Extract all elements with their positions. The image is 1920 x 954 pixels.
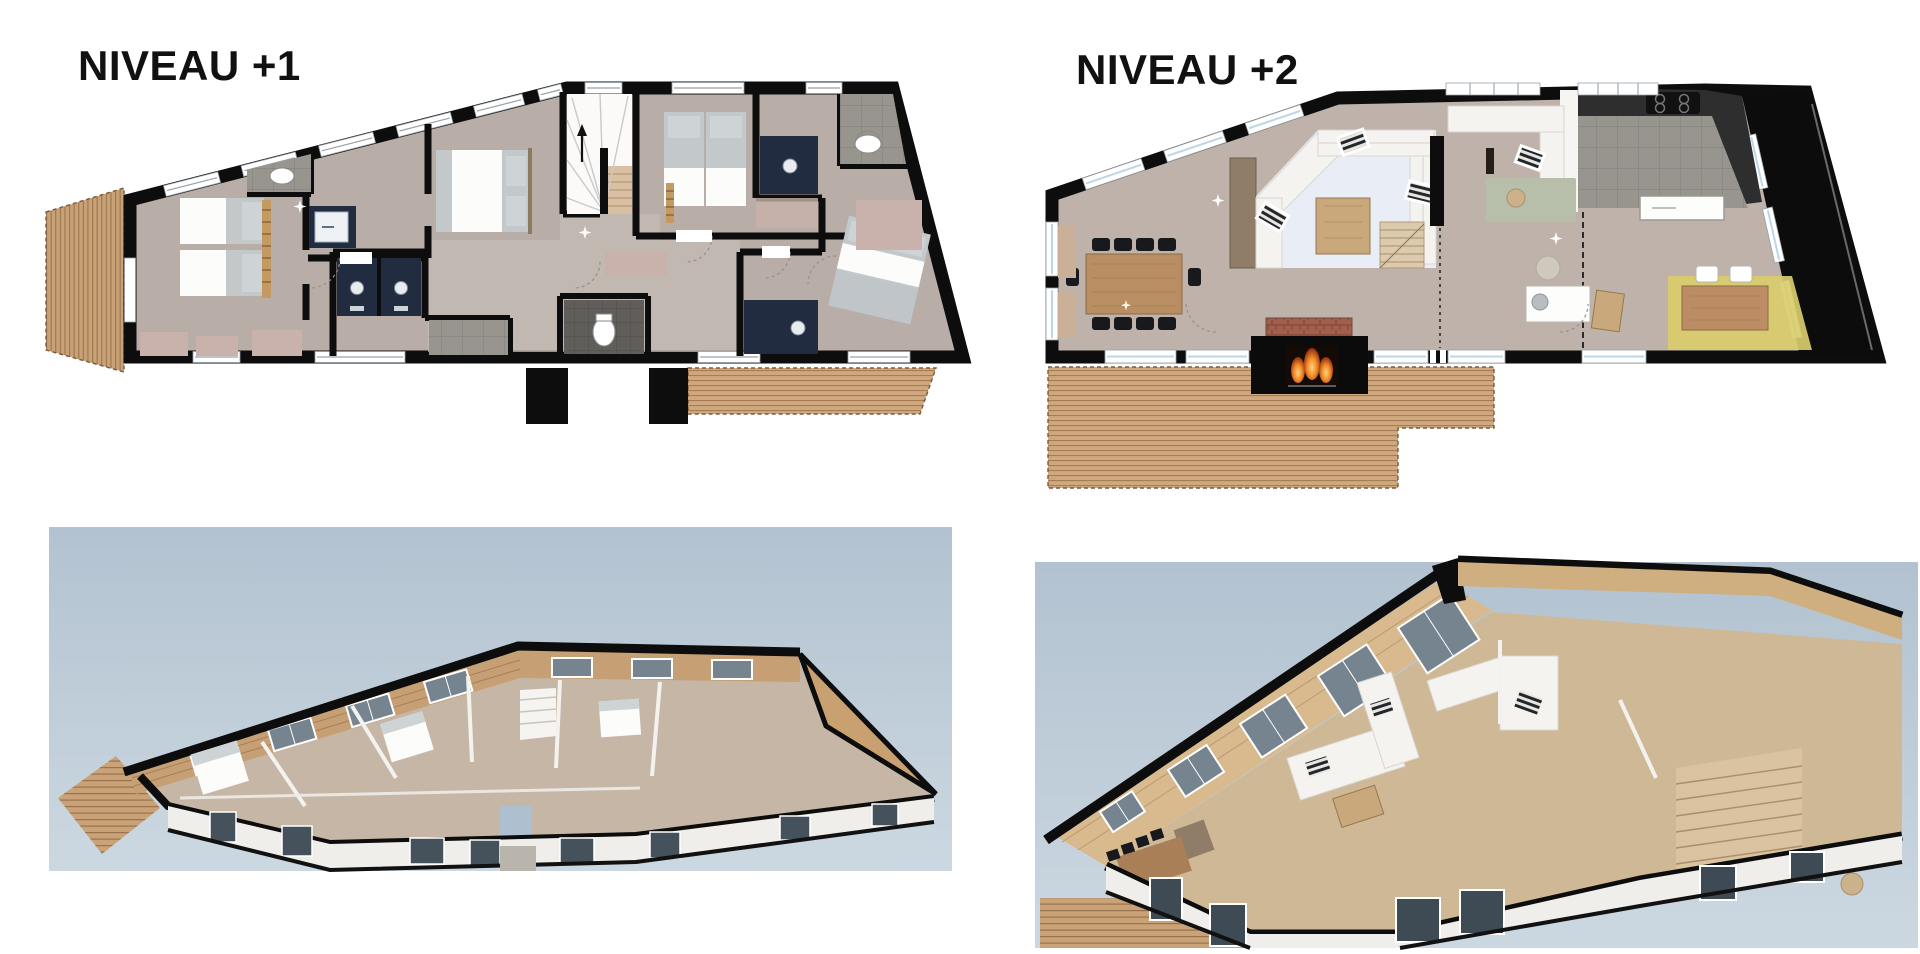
breakfast-corner [1668,266,1812,350]
view3d-level1 [49,527,952,871]
sideboard [1058,292,1076,338]
pillar [649,368,688,424]
rattan-chair [1507,189,1525,207]
view3d-level2 [1035,558,1918,948]
ensuite-top-right [760,136,818,194]
washbasin-room [309,206,356,248]
side-table [1536,256,1560,280]
staircase-level2 [1380,222,1424,268]
pillar [526,368,568,424]
stone-pillar [500,846,536,871]
plans-graphic [0,0,1920,954]
small-table [1591,290,1624,332]
stairs-3d [520,688,556,740]
tall-cabinet [1230,158,1256,268]
bed-left-twin-2 [180,250,264,296]
plan-level2 [1046,83,1878,488]
sideboard [1058,226,1076,278]
rattan-chair [1841,873,1863,895]
shower-room [429,320,508,355]
green-rug [1486,178,1576,222]
deck-bottom [688,368,936,414]
window-left-wall [125,258,136,322]
bed-middle-double [436,148,532,234]
plan-level1 [46,83,963,425]
tv-screen [1486,148,1494,174]
staircase [567,94,632,214]
ensuite-bottom-right [744,300,818,354]
fireplace [1251,318,1368,394]
desk-chair [1532,294,1548,310]
bed-left-twin-1 [180,198,264,244]
floor-plan-sheet: NIVEAU +1 NIVEAU +2 [0,0,1920,954]
wc-room [564,300,644,354]
kitchen [1560,88,1762,220]
deck-left [46,188,124,372]
media-wall [1430,136,1444,226]
